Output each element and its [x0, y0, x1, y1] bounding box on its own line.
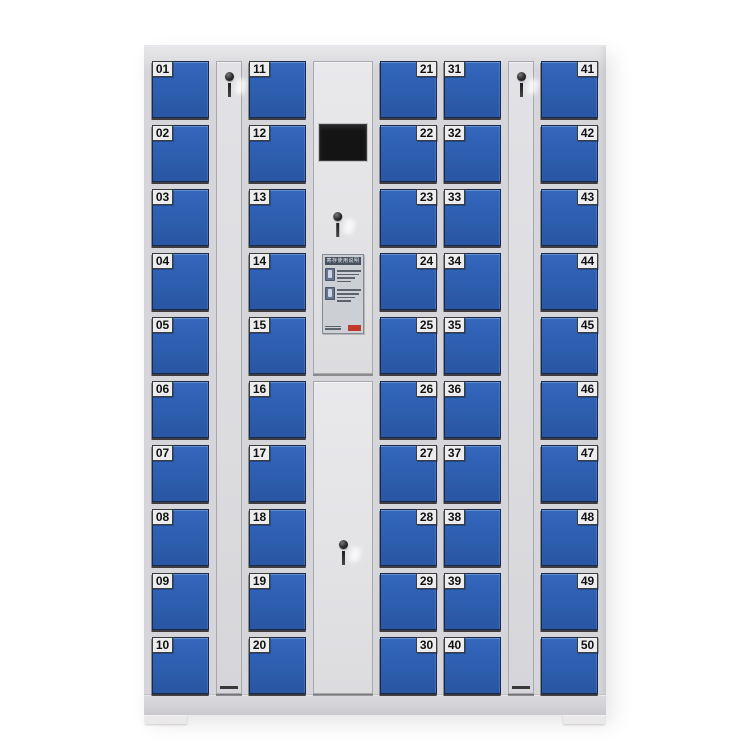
locker-door-01[interactable]: 01 [152, 61, 209, 118]
door-number-label: 30 [416, 637, 437, 653]
photo-background: 寄存使用说明 [0, 0, 750, 750]
panel-slot [220, 686, 238, 689]
door-number-label: 21 [416, 61, 437, 77]
locker-door-48[interactable]: 48 [541, 509, 598, 566]
key-panel[interactable] [508, 61, 534, 694]
locker-door-47[interactable]: 47 [541, 445, 598, 502]
locker-door-30[interactable]: 30 [380, 637, 437, 694]
cabinet-base [144, 694, 606, 715]
door-number-label: 12 [249, 125, 270, 141]
keychain-fob [348, 546, 361, 563]
door-number-label: 42 [577, 125, 598, 141]
door-number-label: 32 [444, 125, 465, 141]
door-number-label: 47 [577, 445, 598, 461]
locker-door-50[interactable]: 50 [541, 637, 598, 694]
sticker-text-lines [337, 287, 361, 303]
door-number-label: 06 [152, 381, 173, 397]
deposit-icon [325, 268, 335, 281]
door-number-label: 43 [577, 189, 598, 205]
locker-door-27[interactable]: 27 [380, 445, 437, 502]
door-number-label: 09 [152, 573, 173, 589]
locker-door-20[interactable]: 20 [249, 637, 306, 694]
sticker-step-1 [325, 268, 361, 284]
locker-door-29[interactable]: 29 [380, 573, 437, 630]
key-icon[interactable] [334, 540, 352, 572]
locker-door-23[interactable]: 23 [380, 189, 437, 246]
door-number-label: 44 [577, 253, 598, 269]
key-shaft [228, 83, 231, 97]
door-number-label: 48 [577, 509, 598, 525]
door-number-label: 27 [416, 445, 437, 461]
locker-door-14[interactable]: 14 [249, 253, 306, 310]
sticker-text-lines [337, 268, 361, 284]
door-number-label: 16 [249, 381, 270, 397]
locker-door-26[interactable]: 26 [380, 381, 437, 438]
locker-door-35[interactable]: 35 [444, 317, 501, 374]
door-number-label: 10 [152, 637, 173, 653]
key-icon[interactable] [328, 212, 346, 244]
control-column: 寄存使用说明 [313, 61, 373, 694]
sticker-text-lines [325, 325, 341, 331]
locker-door-33[interactable]: 33 [444, 189, 501, 246]
cabinet-grid: 寄存使用说明 [144, 45, 606, 694]
sticker-footer [325, 323, 361, 331]
key-head [339, 540, 348, 549]
key-icon[interactable] [512, 72, 530, 104]
locker-door-19[interactable]: 19 [249, 573, 306, 630]
locker-door-17[interactable]: 17 [249, 445, 306, 502]
door-number-label: 39 [444, 573, 465, 589]
door-number-label: 04 [152, 253, 173, 269]
locker-door-18[interactable]: 18 [249, 509, 306, 566]
keychain-fob [343, 218, 356, 235]
door-number-label: 37 [444, 445, 465, 461]
door-number-label: 07 [152, 445, 173, 461]
door-number-label: 02 [152, 125, 173, 141]
control-door-upper[interactable]: 寄存使用说明 [313, 61, 373, 374]
door-number-label: 11 [249, 61, 270, 77]
key-head [225, 72, 234, 81]
door-number-label: 36 [444, 381, 465, 397]
door-number-label: 03 [152, 189, 173, 205]
door-number-label: 23 [416, 189, 437, 205]
door-number-label: 34 [444, 253, 465, 269]
locker-door-25[interactable]: 25 [380, 317, 437, 374]
door-number-label: 25 [416, 317, 437, 333]
key-shaft [336, 223, 339, 237]
door-number-label: 05 [152, 317, 173, 333]
control-door-lower[interactable] [313, 381, 373, 694]
door-number-label: 31 [444, 61, 465, 77]
locker-door-11[interactable]: 11 [249, 61, 306, 118]
door-number-label: 13 [249, 189, 270, 205]
key-shaft [342, 551, 345, 565]
door-number-label: 18 [249, 509, 270, 525]
door-number-label: 20 [249, 637, 270, 653]
door-number-label: 33 [444, 189, 465, 205]
locker-door-45[interactable]: 45 [541, 317, 598, 374]
door-number-label: 15 [249, 317, 270, 333]
key-head [517, 72, 526, 81]
door-number-label: 45 [577, 317, 598, 333]
locker-door-32[interactable]: 32 [444, 125, 501, 182]
sticker-step-2 [325, 287, 361, 303]
door-number-label: 38 [444, 509, 465, 525]
door-number-label: 29 [416, 573, 437, 589]
locker-door-36[interactable]: 36 [444, 381, 501, 438]
locker-door-31[interactable]: 31 [444, 61, 501, 118]
door-number-label: 28 [416, 509, 437, 525]
locker-door-41[interactable]: 41 [541, 61, 598, 118]
instruction-sticker: 寄存使用说明 [322, 254, 364, 334]
locker-door-09[interactable]: 09 [152, 573, 209, 630]
locker-door-12[interactable]: 12 [249, 125, 306, 182]
door-number-label: 41 [577, 61, 598, 77]
locker-door-22[interactable]: 22 [380, 125, 437, 182]
locker-door-10[interactable]: 10 [152, 637, 209, 694]
locker-door-40[interactable]: 40 [444, 637, 501, 694]
locker-door-37[interactable]: 37 [444, 445, 501, 502]
locker-door-02[interactable]: 02 [152, 125, 209, 182]
locker-door-05[interactable]: 05 [152, 317, 209, 374]
screen[interactable] [319, 124, 367, 161]
door-number-label: 49 [577, 573, 598, 589]
locker-door-15[interactable]: 15 [249, 317, 306, 374]
keychain-fob [234, 78, 247, 95]
door-number-label: 14 [249, 253, 270, 269]
door-number-label: 35 [444, 317, 465, 333]
panel-slot [512, 686, 530, 689]
door-number-label: 17 [249, 445, 270, 461]
door-number-label: 01 [152, 61, 173, 77]
door-number-label: 50 [577, 637, 598, 653]
locker-door-21[interactable]: 21 [380, 61, 437, 118]
red-stamp [348, 325, 361, 331]
cabinet-foot-left [145, 715, 187, 724]
locker-door-44[interactable]: 44 [541, 253, 598, 310]
door-number-label: 08 [152, 509, 173, 525]
sticker-title: 寄存使用说明 [325, 257, 361, 265]
door-number-label: 19 [249, 573, 270, 589]
key-shaft [520, 83, 523, 97]
locker-door-08[interactable]: 08 [152, 509, 209, 566]
key-panel[interactable] [216, 61, 242, 694]
keychain-fob [526, 78, 539, 95]
locker-cabinet: 寄存使用说明 [144, 45, 606, 715]
key-head [333, 212, 342, 221]
door-number-label: 24 [416, 253, 437, 269]
locker-door-43[interactable]: 43 [541, 189, 598, 246]
cabinet-foot-right [563, 715, 605, 724]
key-icon[interactable] [220, 72, 238, 104]
locker-door-13[interactable]: 13 [249, 189, 306, 246]
door-number-label: 26 [416, 381, 437, 397]
locker-door-24[interactable]: 24 [380, 253, 437, 310]
locker-door-03[interactable]: 03 [152, 189, 209, 246]
locker-door-07[interactable]: 07 [152, 445, 209, 502]
locker-door-38[interactable]: 38 [444, 509, 501, 566]
locker-door-16[interactable]: 16 [249, 381, 306, 438]
locker-door-42[interactable]: 42 [541, 125, 598, 182]
locker-door-49[interactable]: 49 [541, 573, 598, 630]
locker-door-06[interactable]: 06 [152, 381, 209, 438]
door-number-label: 22 [416, 125, 437, 141]
door-number-label: 46 [577, 381, 598, 397]
door-number-label: 40 [444, 637, 465, 653]
locker-door-28[interactable]: 28 [380, 509, 437, 566]
locker-door-39[interactable]: 39 [444, 573, 501, 630]
locker-door-34[interactable]: 34 [444, 253, 501, 310]
retrieve-icon [325, 287, 335, 300]
locker-door-46[interactable]: 46 [541, 381, 598, 438]
locker-door-04[interactable]: 04 [152, 253, 209, 310]
